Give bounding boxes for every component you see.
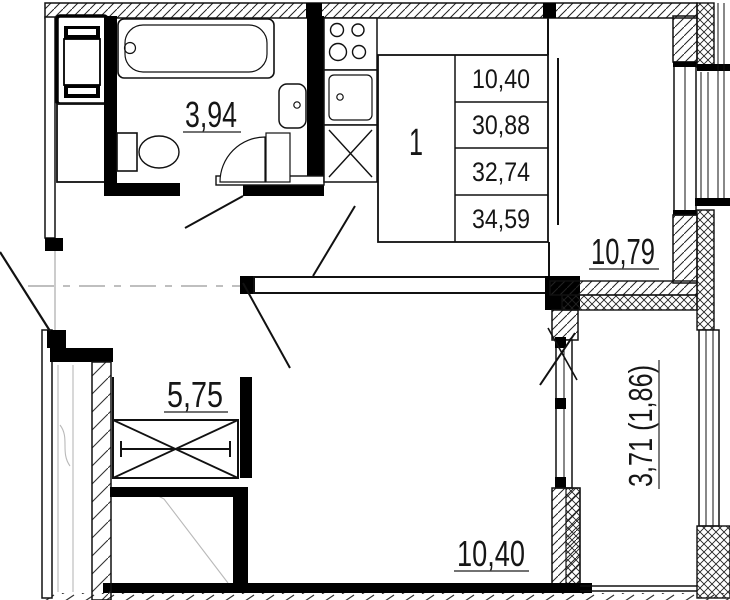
room-label-hall: 5,75 bbox=[167, 374, 223, 415]
bathroom-bottom-wall bbox=[243, 185, 324, 196]
top-exterior-wall bbox=[45, 3, 697, 18]
window-pier-top bbox=[673, 16, 697, 62]
bathtub-icon bbox=[118, 19, 274, 78]
area-table: 1 10,40 30,88 32,74 34,59 bbox=[378, 55, 548, 242]
bottom-exterior-wall bbox=[103, 583, 592, 593]
storage-top-wall bbox=[110, 487, 248, 497]
kitchen-fixtures bbox=[324, 18, 377, 182]
room-label-balcony: 3,71 (1,86) bbox=[622, 365, 659, 487]
balcony-top-wall-insulation bbox=[562, 295, 697, 310]
toilet-icon bbox=[117, 133, 179, 171]
bathroom-door-leaf bbox=[266, 133, 290, 182]
balcony-right-glazing bbox=[699, 330, 719, 526]
floor-plan-drawing: 1 10,40 30,88 32,74 34,59 3,94 10,79 5,7… bbox=[0, 0, 730, 600]
balcony-corner-pier bbox=[697, 526, 730, 598]
entrance-jamb-top bbox=[45, 238, 63, 251]
area-table-value-full: 34,59 bbox=[472, 204, 530, 234]
window-pier-bottom bbox=[673, 215, 697, 283]
hall-left-wall bbox=[92, 362, 111, 600]
vent-shaft-icon bbox=[57, 16, 107, 104]
partition-wall bbox=[254, 277, 550, 293]
shaft-cap-wall bbox=[50, 348, 113, 362]
left-exterior-wall-lower bbox=[42, 330, 52, 598]
kitchen-cabinet-icon bbox=[324, 125, 377, 182]
room-label-bathroom: 3,94 bbox=[185, 94, 237, 135]
wardrobe-icon bbox=[113, 420, 238, 478]
kitchen-sink-icon bbox=[324, 70, 377, 125]
floor-plan-page: 1 10,40 30,88 32,74 34,59 3,94 10,79 5,7… bbox=[0, 0, 730, 600]
area-table-value-reduced: 32,74 bbox=[472, 157, 530, 187]
bathroom-right-wall bbox=[307, 16, 324, 196]
area-table-value-total: 30,88 bbox=[472, 110, 530, 140]
washbasin-icon bbox=[279, 84, 306, 128]
storage-right-wall bbox=[233, 497, 248, 589]
bathroom-bottom-wall bbox=[104, 183, 180, 196]
wall-junction bbox=[543, 3, 556, 18]
area-table-value-living: 10,40 bbox=[472, 64, 530, 94]
bottom-wall-hatch bbox=[42, 593, 730, 600]
area-table-rooms-count: 1 bbox=[409, 122, 423, 164]
left-exterior-wall-upper bbox=[45, 17, 55, 238]
room-label-living: 10,40 bbox=[457, 533, 525, 574]
entrance-jamb-bottom bbox=[47, 330, 66, 348]
room-label-kitchen-living: 10,79 bbox=[591, 231, 655, 272]
utility-cabinet bbox=[57, 104, 107, 182]
wall-junction bbox=[306, 3, 322, 18]
bathroom-left-wall bbox=[104, 16, 117, 196]
stove-icon bbox=[324, 18, 377, 70]
hall-right-wall bbox=[240, 377, 252, 478]
